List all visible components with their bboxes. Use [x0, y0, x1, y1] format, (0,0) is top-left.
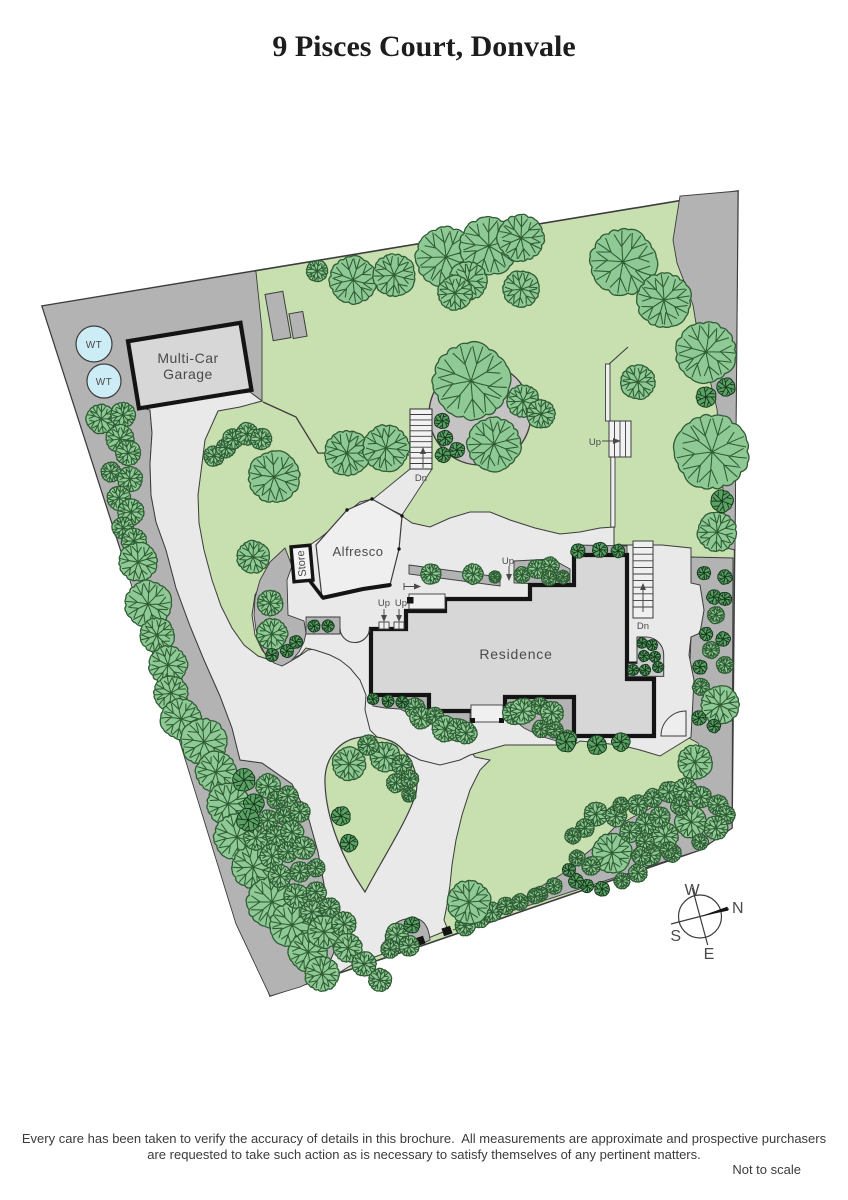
svg-text:Residence: Residence [479, 646, 552, 662]
svg-text:Alfresco: Alfresco [333, 544, 384, 559]
svg-text:W: W [684, 882, 700, 899]
svg-text:Up: Up [589, 437, 601, 448]
svg-text:WT: WT [96, 377, 113, 388]
svg-text:S: S [670, 928, 681, 945]
svg-text:N: N [732, 900, 744, 917]
svg-text:WT: WT [86, 340, 103, 351]
svg-text:E: E [704, 946, 715, 963]
svg-text:Store: Store [295, 550, 309, 577]
svg-text:Garage: Garage [163, 366, 213, 382]
svg-text:Dn: Dn [415, 473, 427, 484]
svg-text:Up: Up [395, 598, 407, 609]
svg-text:Up: Up [378, 598, 390, 609]
svg-text:Up: Up [502, 556, 514, 567]
svg-text:Multi-Car: Multi-Car [157, 350, 218, 366]
svg-text:Dn: Dn [637, 621, 649, 632]
